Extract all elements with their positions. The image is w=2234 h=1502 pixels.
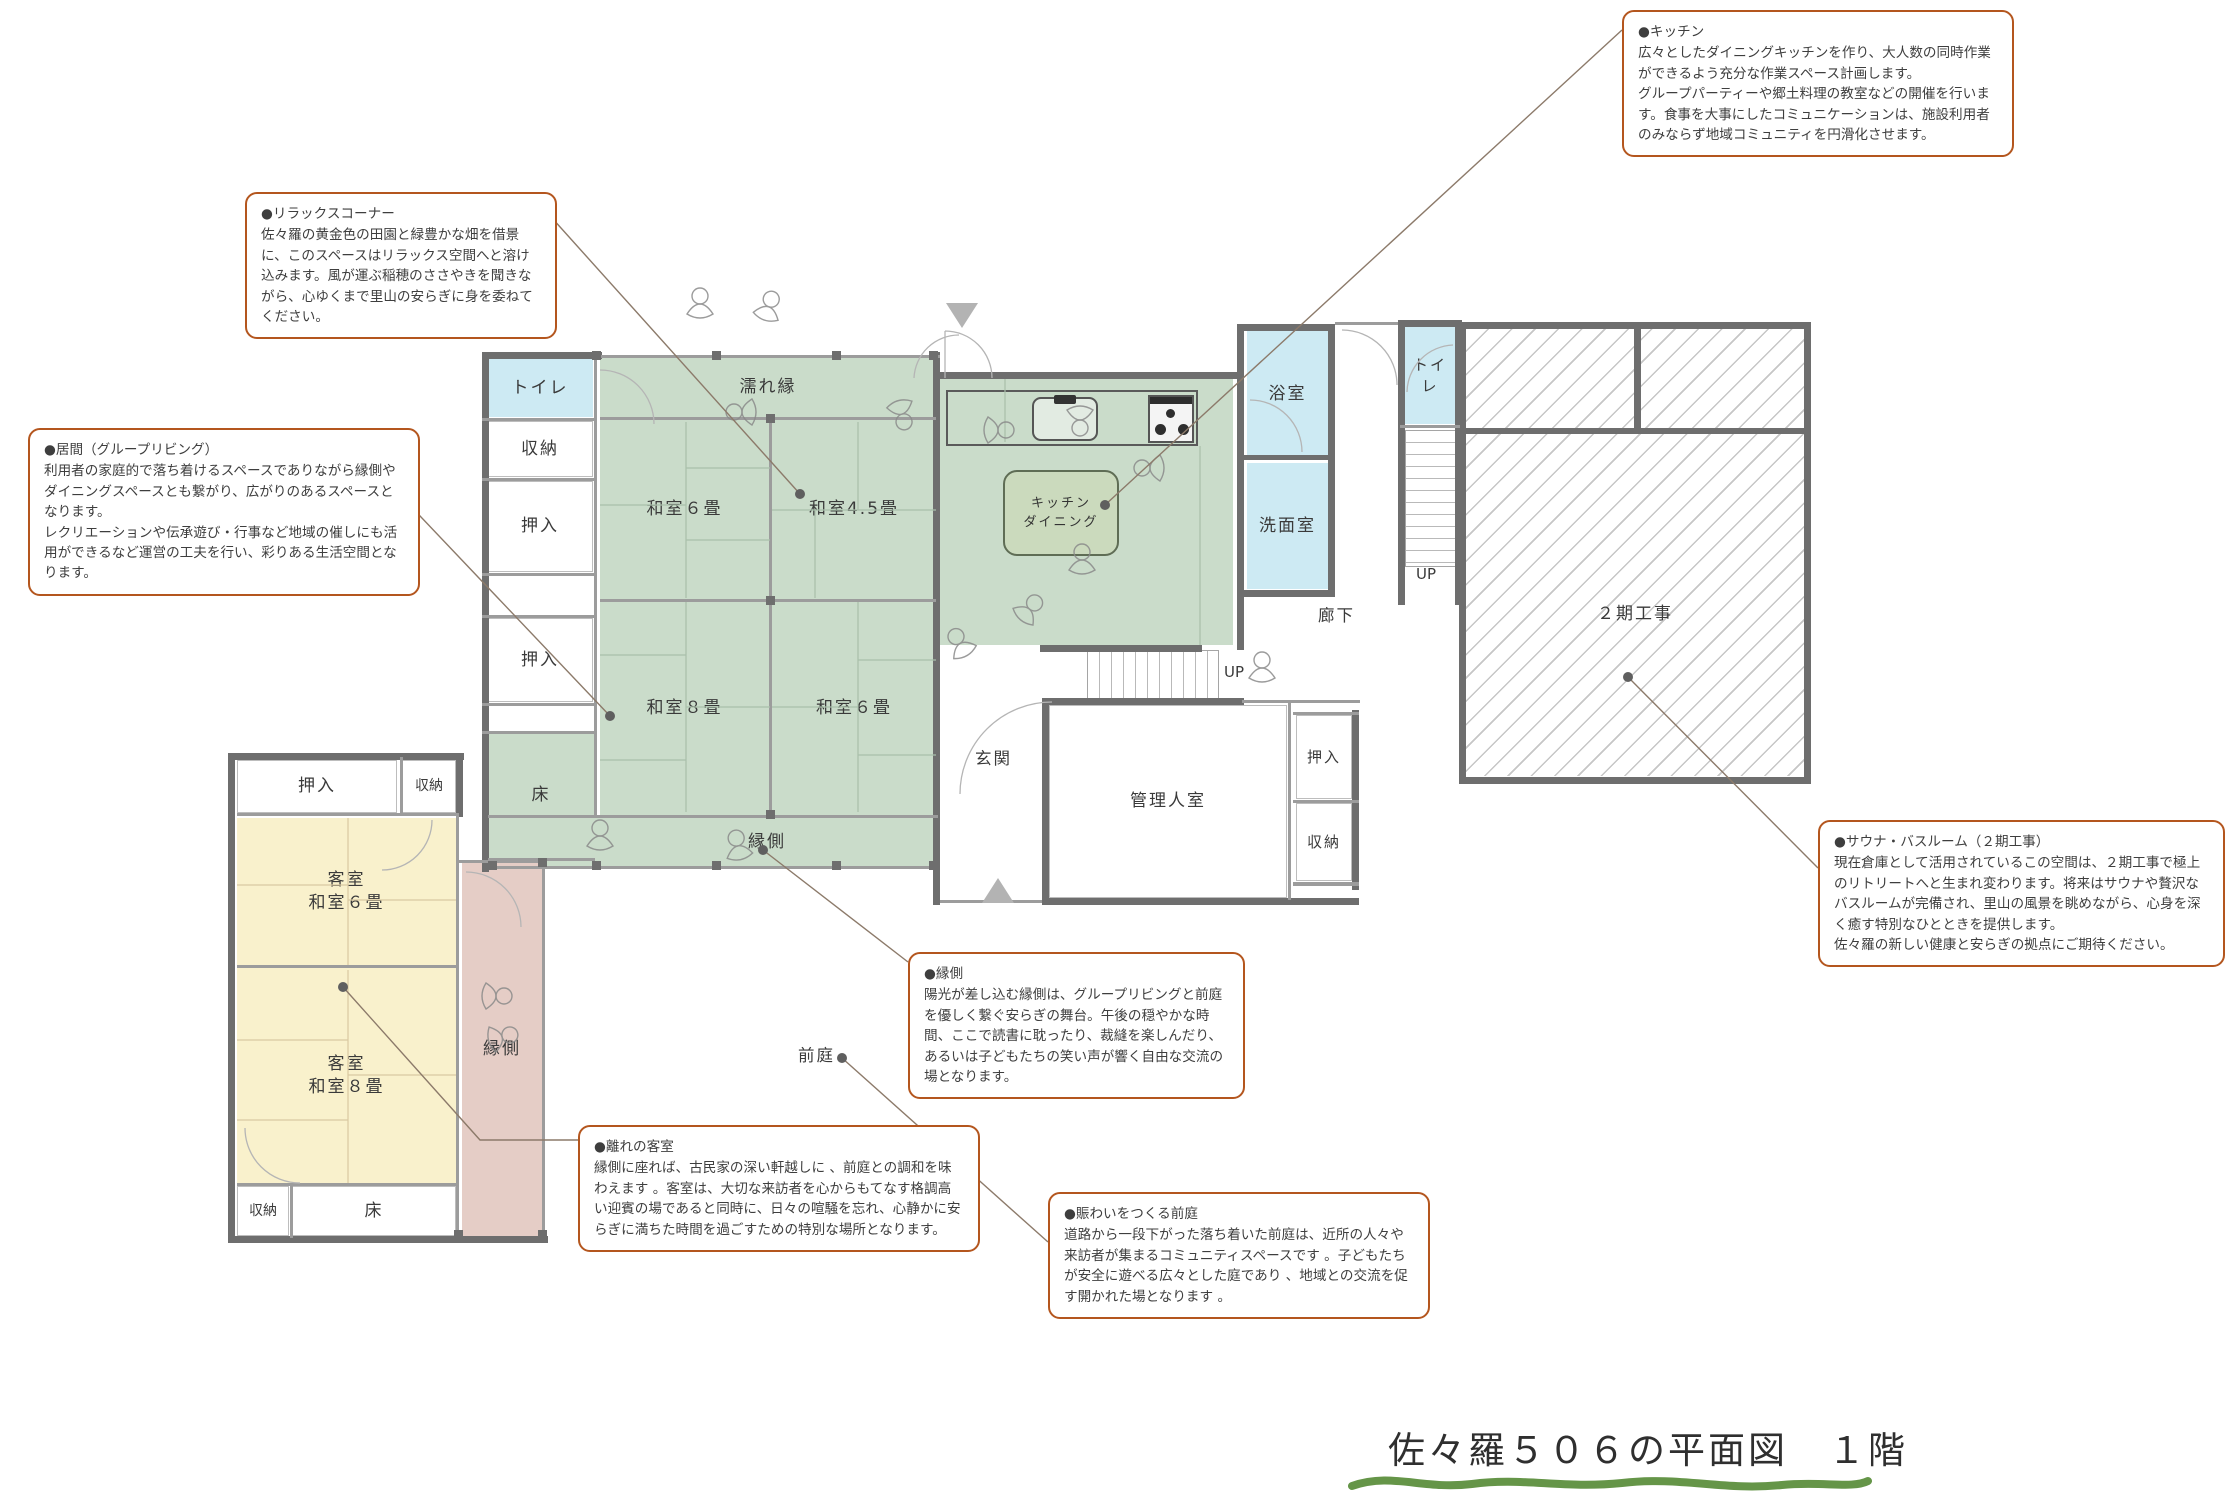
wall-thin — [488, 815, 938, 818]
wall — [1240, 324, 1335, 331]
callout-sauna: ●サウナ・バスルーム（２期工事） 現在倉庫として活用されているこの空間は、２期工… — [1818, 820, 2225, 967]
room-storage-east: 収納 — [1296, 803, 1352, 881]
room-guest6: 客室 和室６畳 — [237, 818, 456, 965]
page-title: 佐々羅５０６の平面図 １階 — [1388, 1420, 1908, 1474]
callout-body: 陽光が差し込む縁側は、グループリビングと前庭を優しく繋ぐ安らぎの舞台。午後の穏や… — [924, 985, 1229, 1087]
label-genkan: 玄関 — [975, 745, 1012, 769]
post — [592, 351, 601, 360]
wall-thin — [600, 355, 940, 358]
wall — [1237, 378, 1244, 650]
room-label: 濡れ縁 — [740, 376, 797, 399]
callout-engawa: ●縁側 陽光が差し込む縁側は、グループリビングと前庭を優しく繋ぐ安らぎの舞台。午… — [908, 952, 1245, 1099]
wall-thin — [456, 815, 459, 1238]
wall-thin — [1293, 800, 1359, 803]
room-toilet-main: トイレ — [487, 359, 593, 417]
wall — [1634, 328, 1641, 431]
room-washitsu6-south: 和室６畳 — [772, 602, 936, 815]
callout-relax: ●リラックスコーナー 佐々羅の黄金色の田園と緑豊かな畑を借景に、このスペースはリ… — [245, 192, 557, 339]
wall-thin — [542, 862, 545, 1238]
room-label: 押入 — [521, 649, 559, 672]
wall-thin — [290, 1186, 293, 1238]
room-guest8: 客室 和室８畳 — [237, 968, 456, 1183]
room-nureen: 濡れ縁 — [600, 358, 936, 417]
room-label: 収納 — [1307, 832, 1341, 852]
kitchen-counter — [946, 390, 1198, 446]
callout-kitchen: ●キッチン 広々としたダイニングキッチンを作り、大人数の同時作業ができるよう充分… — [1622, 10, 2014, 157]
post — [592, 861, 601, 870]
room-label: 押入 — [1307, 747, 1341, 767]
wall-thin — [400, 757, 403, 815]
room-washitsu45: 和室4.5畳 — [772, 420, 936, 599]
label-corridor: 廊下 — [1318, 602, 1355, 626]
wall-thin — [1335, 322, 1398, 325]
post — [766, 596, 775, 605]
wall-thin — [482, 573, 594, 576]
wall — [482, 352, 489, 872]
wall — [228, 1236, 548, 1243]
room-washitsu6-north: 和室６畳 — [600, 420, 769, 599]
entrance-arrow-up-icon — [982, 878, 1014, 903]
room-label: 和室８畳 — [647, 697, 723, 720]
post — [929, 351, 938, 360]
room-oshiire-nw2: 押入 — [487, 618, 593, 702]
callout-heading: ●サウナ・バスルーム（２期工事） — [1834, 832, 2209, 852]
room-label: 和室4.5畳 — [809, 498, 899, 521]
wall — [228, 753, 464, 760]
wall — [228, 753, 235, 1243]
post — [766, 810, 775, 819]
callout-heading: ●縁側 — [924, 964, 1229, 984]
room-toilet-east: トイレ — [1405, 327, 1455, 424]
room-label: 収納 — [521, 438, 559, 461]
room-label: 縁側 — [748, 831, 786, 854]
table-label: キッチン ダイニング — [1023, 494, 1098, 533]
post — [929, 861, 938, 870]
callout-body: 利用者の家庭的で落ち着けるスペースでありながら縁側やダイニングスペースとも繋がり… — [44, 461, 404, 583]
wall — [1237, 324, 1244, 378]
label-up-middle: UP — [1224, 663, 1244, 681]
wall-thin — [482, 703, 594, 706]
room-manager: 管理人室 — [1049, 705, 1287, 898]
room-oshiire-annex: 押入 — [237, 760, 397, 813]
room-bath: 浴室 — [1247, 331, 1328, 457]
entrance-arrow-down-icon — [946, 303, 978, 328]
wall-thin — [1293, 882, 1359, 886]
room-label: トイレ — [512, 377, 569, 400]
room-label: 床 — [365, 1200, 384, 1223]
room-label: 収納 — [249, 1202, 277, 1221]
label-up-east: UP — [1416, 565, 1436, 583]
room-storage-annex-north: 収納 — [402, 760, 456, 813]
wall-thin — [237, 965, 459, 968]
wall-thin — [482, 615, 594, 618]
wall — [1042, 698, 1244, 705]
wall-thin — [594, 352, 597, 818]
wall — [940, 372, 1242, 379]
room-label: トイレ — [1405, 355, 1455, 396]
wall — [1328, 324, 1335, 596]
room-label: 洗面室 — [1259, 515, 1316, 538]
room-oshiire-east: 押入 — [1296, 715, 1352, 799]
callout-heading: ●賑わいをつくる前庭 — [1064, 1204, 1414, 1224]
room-label: 客室 和室６畳 — [309, 869, 385, 915]
stove-icon — [1148, 395, 1194, 443]
wall-thin — [237, 813, 459, 816]
post — [832, 861, 841, 870]
room-label: 床 — [532, 784, 551, 807]
wall-thin — [1293, 712, 1359, 715]
wall — [1040, 645, 1202, 652]
room-label: 浴室 — [1269, 383, 1307, 406]
room-oshiire-nw1: 押入 — [487, 481, 593, 572]
post — [488, 861, 497, 870]
room-storage-annex-south: 収納 — [237, 1186, 289, 1236]
wall-thin — [482, 478, 594, 481]
room-label: 和室６畳 — [816, 697, 892, 720]
wall — [1804, 322, 1811, 784]
wall — [1459, 777, 1811, 784]
post — [766, 414, 775, 423]
wall-thin — [482, 418, 594, 421]
label-front-garden: 前庭 — [798, 1042, 835, 1066]
room-label: 和室６畳 — [647, 498, 723, 521]
post — [712, 351, 721, 360]
post — [712, 861, 721, 870]
post — [454, 1230, 463, 1239]
wall-thin — [1400, 425, 1460, 428]
wall — [1459, 322, 1466, 784]
post — [832, 351, 841, 360]
room-washitsu8: 和室８畳 — [600, 602, 769, 815]
wall-thin — [237, 1183, 459, 1186]
room-label: 押入 — [298, 775, 336, 798]
wall-thin — [459, 860, 545, 863]
wall — [1042, 698, 1049, 905]
wall — [1398, 320, 1462, 327]
wall — [1398, 320, 1405, 605]
wall-thin — [1242, 700, 1360, 703]
callout-heading: ●離れの客室 — [594, 1137, 964, 1157]
room-label: ２期工事 — [1597, 603, 1673, 626]
callout-living: ●居間（グループリビング） 利用者の家庭的で落ち着けるスペースでありながら縁側や… — [28, 428, 420, 596]
floor-plan-page: トイレ 収納 押入 押入 床 濡れ縁 和室６畳 和室4.5畳 和室８畳 和室６畳… — [0, 0, 2234, 1502]
room-label: 収納 — [415, 777, 443, 796]
callout-body: 佐々羅の黄金色の田園と緑豊かな畑を借景に、このスペースはリラックス空間へと溶け込… — [261, 225, 541, 327]
wall — [1240, 590, 1335, 597]
callout-body: 広々としたダイニングキッチンを作り、大人数の同時作業ができるよう充分な作業スペー… — [1638, 43, 1998, 145]
wall — [1042, 898, 1359, 905]
wall — [482, 352, 602, 359]
stairs-east — [1405, 430, 1457, 567]
callout-guest-room: ●離れの客室 縁側に座れば、古民家の深い軒越しに 、前庭との調和を味わえます 。… — [578, 1125, 980, 1252]
room-storage-nw: 収納 — [487, 421, 593, 477]
room-label: 縁側 — [483, 1038, 521, 1061]
callout-front-garden: ●賑わいをつくる前庭 道路から一段下がった落ち着いた前庭は、近所の人々や来訪者が… — [1048, 1192, 1430, 1319]
room-label: 客室 和室８畳 — [309, 1053, 385, 1099]
callout-heading: ●リラックスコーナー — [261, 204, 541, 224]
wall — [1240, 455, 1335, 460]
sink-icon — [1032, 397, 1098, 441]
callout-body: 縁側に座れば、古民家の深い軒越しに 、前庭との調和を味わえます 。客室は、大切な… — [594, 1158, 964, 1240]
post — [538, 1230, 547, 1239]
room-engawa-annex: 縁側 — [462, 862, 542, 1236]
wall-thin — [769, 420, 772, 816]
room-washroom: 洗面室 — [1247, 463, 1328, 589]
callout-body: 道路から一段下がった落ち着いた前庭は、近所の人々や来訪者が集まるコミュニティスペ… — [1064, 1225, 1414, 1307]
wall-thin — [1288, 700, 1291, 900]
callout-heading: ●居間（グループリビング） — [44, 440, 404, 460]
wall-thin — [482, 731, 594, 734]
room-label: 管理人室 — [1130, 790, 1206, 813]
callout-heading: ●キッチン — [1638, 22, 1998, 42]
title-underline — [1352, 1481, 1868, 1487]
wall — [456, 753, 463, 817]
room-toko-annex: 床 — [292, 1186, 456, 1236]
post — [538, 858, 547, 867]
wall — [1459, 428, 1811, 434]
callout-body: 現在倉庫として活用されているこの空間は、２期工事で極上のリトリートへと生まれ変わ… — [1834, 853, 2209, 955]
room-label: 押入 — [521, 515, 559, 538]
dining-table: キッチン ダイニング — [1003, 470, 1119, 556]
stairs-middle — [1087, 650, 1219, 700]
